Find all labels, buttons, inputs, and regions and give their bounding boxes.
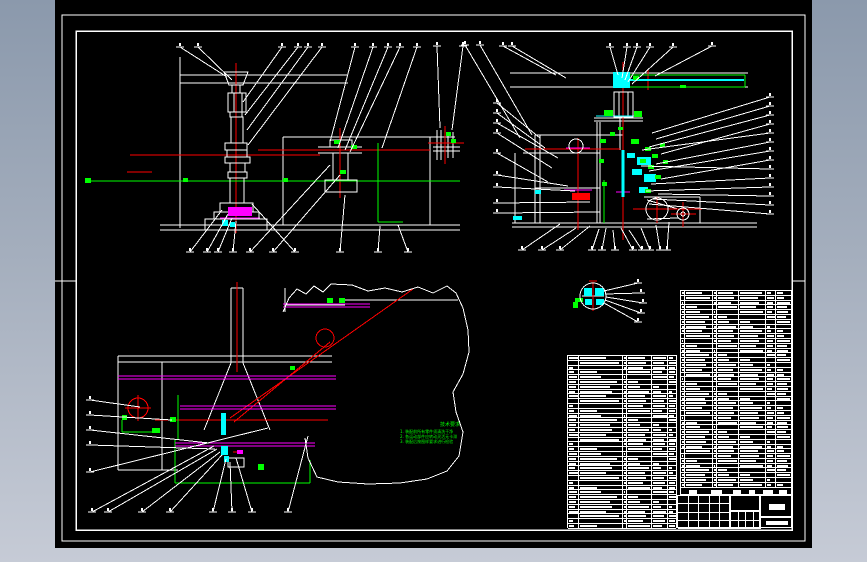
bom-cell bbox=[739, 464, 765, 468]
bom-cell-text bbox=[682, 321, 685, 323]
bom-cell bbox=[668, 452, 676, 456]
bom-cell bbox=[776, 305, 791, 309]
bom-cell bbox=[668, 366, 676, 370]
bom-cell-text bbox=[777, 330, 783, 332]
bom-cell-text bbox=[777, 446, 783, 448]
bom-cell bbox=[739, 301, 765, 305]
bom-cell bbox=[568, 385, 579, 389]
bom-cell-text bbox=[653, 511, 666, 513]
bom-cell bbox=[668, 462, 676, 466]
bom-cell bbox=[627, 428, 652, 432]
bom-cell-text bbox=[686, 306, 697, 308]
bom-cell-text bbox=[682, 436, 685, 438]
bom-cell bbox=[776, 358, 791, 362]
bom-cell-text bbox=[628, 424, 640, 426]
balloon-number bbox=[649, 246, 651, 249]
bom-cell-text bbox=[628, 391, 648, 393]
bom-cell-text bbox=[669, 448, 675, 450]
bom-cell-text bbox=[740, 446, 762, 448]
bom-cell-text bbox=[569, 506, 575, 508]
bom-cell bbox=[776, 406, 791, 410]
bom-cell bbox=[568, 418, 579, 422]
bom-cell bbox=[652, 390, 668, 394]
title-block-cell bbox=[730, 495, 760, 511]
bom-cell bbox=[652, 490, 668, 494]
bom-cell-text bbox=[718, 450, 734, 452]
balloon-number bbox=[496, 119, 498, 122]
bom-cell bbox=[766, 449, 776, 453]
bom-cell-text bbox=[740, 306, 755, 308]
title-block-grid-cell bbox=[678, 496, 689, 504]
bom-cell bbox=[685, 310, 713, 314]
bom-cell bbox=[776, 382, 791, 386]
bom-cell bbox=[739, 416, 765, 420]
drawing-fill bbox=[644, 174, 656, 182]
drawing-fill bbox=[221, 446, 228, 455]
bom-cell bbox=[579, 418, 623, 422]
bom-cell-text bbox=[714, 311, 715, 313]
bom-cell-text bbox=[669, 506, 672, 508]
bom-cell bbox=[627, 370, 652, 374]
bom-cell bbox=[627, 481, 652, 485]
bom-cell-text bbox=[767, 292, 771, 294]
bom-cell-text bbox=[686, 335, 710, 337]
bom-cell-text bbox=[569, 386, 576, 388]
bom-cell-text bbox=[669, 458, 676, 460]
bom-cell bbox=[668, 447, 676, 451]
bom-cell-text bbox=[624, 467, 626, 469]
bom-cell bbox=[739, 449, 765, 453]
bom-cell-text bbox=[580, 395, 606, 397]
bom-cell-text bbox=[653, 467, 661, 469]
bom-cell-text bbox=[653, 391, 661, 393]
bom-cell-text bbox=[624, 515, 626, 517]
balloon-number bbox=[251, 508, 253, 511]
bom-cell bbox=[568, 457, 579, 461]
bom-cell-text bbox=[767, 450, 775, 452]
bom-cell bbox=[668, 481, 676, 485]
bom-cell bbox=[627, 375, 652, 379]
bom-cell bbox=[739, 397, 765, 401]
title-block-grid-cell bbox=[710, 521, 721, 529]
bom-cell bbox=[568, 361, 579, 365]
balloon-number bbox=[387, 43, 389, 46]
bom-cell-text bbox=[653, 367, 664, 369]
bom-cell-text bbox=[718, 326, 736, 328]
bom-cell bbox=[739, 373, 765, 377]
bom-cell bbox=[579, 447, 623, 451]
bom-cell-text bbox=[653, 405, 664, 407]
bom-cell-text bbox=[686, 431, 709, 433]
bom-cell bbox=[568, 414, 579, 418]
title-block-grid-cell bbox=[699, 496, 710, 504]
bom-cell bbox=[627, 452, 652, 456]
bom-cell-text bbox=[580, 400, 619, 402]
bom-cell bbox=[776, 310, 791, 314]
balloon-number bbox=[496, 209, 498, 212]
bom-cell-text bbox=[740, 374, 758, 376]
bom-cell bbox=[717, 459, 739, 463]
bom-cell-text bbox=[569, 405, 573, 407]
bom-cell bbox=[685, 349, 713, 353]
bom-cell bbox=[739, 454, 765, 458]
bom-cell-text bbox=[653, 362, 664, 364]
bom-cell-text bbox=[653, 439, 664, 441]
balloon-number bbox=[189, 248, 191, 251]
bom-cell-text bbox=[653, 520, 664, 522]
bom-cell bbox=[579, 519, 623, 523]
bom-cell-text bbox=[682, 474, 685, 476]
notes-heading: 技术要求 bbox=[400, 423, 500, 428]
bom-cell bbox=[668, 361, 676, 365]
balloon-number bbox=[307, 43, 309, 46]
bom-cell-text bbox=[714, 469, 716, 471]
bom-cell bbox=[627, 409, 652, 413]
bom-cell bbox=[717, 406, 739, 410]
balloon-number bbox=[89, 396, 91, 399]
bom-cell bbox=[652, 428, 668, 432]
balloon-number bbox=[636, 43, 638, 46]
bom-cell-text bbox=[718, 402, 736, 404]
bom-cell bbox=[766, 329, 776, 333]
bom-cell bbox=[568, 399, 579, 403]
bom-cell bbox=[739, 430, 765, 434]
balloon-number bbox=[769, 93, 771, 96]
bom-cell-text bbox=[628, 463, 640, 465]
bom-cell bbox=[776, 325, 791, 329]
bom-cell bbox=[685, 334, 713, 338]
bom-cell-text bbox=[624, 357, 626, 359]
bom-cell bbox=[717, 416, 739, 420]
bom-cell-text bbox=[653, 482, 664, 484]
bom-cell bbox=[766, 296, 776, 300]
bom-cell-text bbox=[686, 326, 706, 328]
bom-cell bbox=[579, 471, 623, 475]
bom-header-text bbox=[749, 490, 755, 494]
bom-cell bbox=[776, 425, 791, 429]
bom-cell bbox=[776, 301, 791, 305]
bom-cell bbox=[652, 399, 668, 403]
bom-cell-text bbox=[767, 326, 771, 328]
bom-cell-text bbox=[767, 412, 775, 414]
balloon-number bbox=[769, 192, 771, 195]
bom-cell bbox=[685, 320, 713, 324]
drawing-fill bbox=[631, 139, 639, 144]
bom-cell bbox=[766, 440, 776, 444]
bom-cell bbox=[579, 476, 623, 480]
bom-cell-text bbox=[669, 515, 675, 517]
bom-cell-text bbox=[628, 458, 638, 460]
bom-cell bbox=[568, 519, 579, 523]
drawing-fill bbox=[585, 299, 592, 305]
bom-cell bbox=[739, 368, 765, 372]
bom-cell bbox=[766, 406, 776, 410]
bom-cell-text bbox=[653, 501, 659, 503]
bom-cell-text bbox=[777, 292, 783, 294]
bom-cell-text bbox=[718, 412, 734, 414]
bom-cell-text bbox=[686, 450, 710, 452]
bom-cell bbox=[766, 334, 776, 338]
bom-cell bbox=[685, 459, 713, 463]
bom-cell bbox=[717, 397, 739, 401]
bom-cell-text bbox=[718, 364, 736, 366]
bom-cell bbox=[627, 466, 652, 470]
drawing-fill bbox=[224, 456, 229, 462]
bom-cell-text bbox=[718, 369, 733, 371]
bom-cell bbox=[717, 430, 739, 434]
balloon-number bbox=[502, 42, 504, 45]
bom-cell bbox=[717, 315, 739, 319]
drawing-fill bbox=[339, 298, 345, 303]
bom-cell-text bbox=[653, 424, 659, 426]
bom-cell bbox=[568, 442, 579, 446]
bom-cell-text bbox=[624, 429, 626, 431]
bom-cell-text bbox=[580, 487, 597, 489]
bom-cell-text bbox=[580, 477, 619, 479]
bom-cell-text bbox=[624, 391, 626, 393]
bom-cell-text bbox=[686, 354, 709, 356]
bom-cell bbox=[717, 363, 739, 367]
bom-cell bbox=[766, 363, 776, 367]
bom-cell bbox=[766, 325, 776, 329]
bom-cell bbox=[739, 382, 765, 386]
bom-cell-text bbox=[628, 400, 646, 402]
balloon-number bbox=[649, 43, 651, 46]
bom-cell-text bbox=[740, 402, 753, 404]
bom-cell-text bbox=[628, 357, 645, 359]
bom-cell bbox=[568, 366, 579, 370]
bom-cell-text bbox=[714, 354, 716, 356]
bom-cell bbox=[652, 394, 668, 398]
bom-cell-text bbox=[767, 426, 772, 428]
bom-cell bbox=[579, 394, 623, 398]
bom-cell-text bbox=[569, 371, 574, 373]
bom-cell bbox=[766, 344, 776, 348]
bom-cell bbox=[685, 315, 713, 319]
bom-cell bbox=[652, 500, 668, 504]
drawing-fill bbox=[634, 111, 642, 117]
bom-cell bbox=[579, 433, 623, 437]
title-block-grid-cell bbox=[710, 496, 721, 504]
bom-cell bbox=[685, 377, 713, 381]
bom-cell-text bbox=[569, 367, 573, 369]
bom-cell-text bbox=[628, 381, 638, 383]
balloon-number bbox=[339, 248, 341, 251]
title-block-cell bbox=[760, 517, 792, 528]
drawing-fill bbox=[600, 139, 606, 143]
bom-cell-text bbox=[714, 369, 717, 371]
bom-cell bbox=[668, 442, 676, 446]
title-block-grid-cell bbox=[699, 504, 710, 512]
bom-header-text bbox=[763, 490, 773, 494]
bom-cell-text bbox=[777, 460, 788, 462]
drawing-fill bbox=[535, 190, 541, 194]
title-block-grid-cell bbox=[689, 496, 700, 504]
bom-cell-text bbox=[718, 374, 734, 376]
bom-cell-text bbox=[718, 407, 733, 409]
bom-cell-text bbox=[682, 422, 684, 424]
balloon-number bbox=[640, 289, 642, 292]
bom-cell-text bbox=[767, 431, 775, 433]
bom-cell-text bbox=[628, 429, 648, 431]
bom-cell-text bbox=[777, 302, 790, 304]
bom-cell bbox=[668, 390, 676, 394]
bom-cell-text bbox=[714, 450, 716, 452]
bom-cell bbox=[766, 368, 776, 372]
bom-cell bbox=[652, 361, 668, 365]
bom-cell bbox=[717, 445, 739, 449]
bom-cell bbox=[766, 301, 776, 305]
bom-cell bbox=[717, 478, 739, 482]
bom-cell bbox=[579, 375, 623, 379]
bom-cell-text bbox=[580, 419, 617, 421]
bom-cell bbox=[739, 421, 765, 425]
bom-cell bbox=[579, 457, 623, 461]
balloon-number bbox=[496, 99, 498, 102]
bom-cell-text bbox=[686, 412, 710, 414]
bom-cell-text bbox=[682, 340, 683, 342]
bom-cell bbox=[652, 366, 668, 370]
title-block-cell bbox=[760, 495, 792, 517]
bom-cell bbox=[776, 401, 791, 405]
bom-cell bbox=[717, 329, 739, 333]
bom-cell-text bbox=[580, 448, 597, 450]
bom-cell-text bbox=[740, 364, 753, 366]
bom-cell bbox=[579, 366, 623, 370]
balloon-number bbox=[496, 183, 498, 186]
bom-cell bbox=[739, 435, 765, 439]
bom-cell bbox=[579, 390, 623, 394]
balloon-number bbox=[496, 199, 498, 202]
bom-cell bbox=[717, 382, 739, 386]
bom-cell-text bbox=[767, 383, 774, 385]
bom-cell bbox=[568, 514, 579, 518]
bom-cell-text bbox=[714, 292, 717, 294]
bom-cell-text bbox=[686, 374, 710, 376]
bom-cell bbox=[668, 500, 676, 504]
bom-cell bbox=[627, 385, 652, 389]
bom-cell bbox=[685, 387, 713, 391]
bom-cell-text bbox=[624, 362, 626, 364]
bom-cell-text bbox=[777, 407, 783, 409]
bom-cell-text bbox=[682, 398, 685, 400]
bom-cell bbox=[568, 428, 579, 432]
drawing-fill bbox=[632, 169, 642, 175]
bom-cell bbox=[568, 471, 579, 475]
bom-cell-text bbox=[740, 326, 753, 328]
bom-cell bbox=[652, 423, 668, 427]
bom-cell bbox=[717, 349, 739, 353]
bom-header-text bbox=[733, 490, 741, 494]
bom-row bbox=[568, 524, 676, 529]
bom-cell bbox=[652, 375, 668, 379]
bom-cell bbox=[739, 320, 765, 324]
bom-cell-text bbox=[777, 354, 786, 356]
drawing-fill bbox=[183, 178, 188, 182]
bom-cell bbox=[685, 353, 713, 357]
bom-cell-text bbox=[669, 482, 674, 484]
bom-cell-text bbox=[777, 388, 789, 390]
balloon-number bbox=[769, 102, 771, 105]
bom-cell-text bbox=[740, 422, 755, 424]
bom-cell-text bbox=[740, 479, 753, 481]
drawing-fill bbox=[575, 298, 583, 302]
balloon-number bbox=[197, 43, 199, 46]
bom-cell bbox=[739, 411, 765, 415]
bom-cell-text bbox=[569, 463, 576, 465]
bom-cell bbox=[627, 433, 652, 437]
bom-cell-text bbox=[718, 292, 733, 294]
bom-cell bbox=[668, 409, 676, 413]
bom-cell-text bbox=[569, 429, 575, 431]
bom-cell bbox=[652, 471, 668, 475]
bom-cell-text bbox=[718, 441, 736, 443]
bom-cell bbox=[652, 452, 668, 456]
bom-cell-text bbox=[580, 463, 610, 465]
bom-cell-text bbox=[580, 525, 597, 527]
bom-cell-text bbox=[669, 491, 674, 493]
bom-cell-text bbox=[580, 491, 602, 493]
bom-cell-text bbox=[669, 362, 675, 364]
bom-cell bbox=[685, 329, 713, 333]
bom-cell-text bbox=[624, 400, 626, 402]
bom-cell bbox=[739, 315, 765, 319]
bom-cell bbox=[652, 380, 668, 384]
bom-cell-text bbox=[740, 311, 763, 313]
bom-cell-text bbox=[686, 474, 705, 476]
bom-cell-text bbox=[569, 491, 577, 493]
bom-cell bbox=[668, 394, 676, 398]
bom-cell-text bbox=[580, 453, 602, 455]
bom-cell-text bbox=[718, 436, 729, 438]
bom-cell-text bbox=[777, 359, 791, 361]
balloon-number bbox=[399, 43, 401, 46]
bom-cell bbox=[668, 476, 676, 480]
bom-cell-text bbox=[767, 330, 771, 332]
bom-cell-text bbox=[669, 520, 674, 522]
bom-cell-text bbox=[669, 367, 674, 369]
bom-cell-text bbox=[653, 376, 667, 378]
bom-cell bbox=[766, 349, 776, 353]
bom-cell bbox=[766, 353, 776, 357]
bom-cell-text bbox=[682, 455, 683, 457]
balloon-number bbox=[632, 246, 634, 249]
bom-cell bbox=[685, 363, 713, 367]
bom-cell-text bbox=[740, 441, 753, 443]
bom-cell-text bbox=[777, 383, 788, 385]
bom-table-left bbox=[567, 355, 677, 528]
bom-cell-text bbox=[569, 467, 575, 469]
balloon-number bbox=[407, 248, 409, 251]
bom-cell-text bbox=[653, 472, 666, 474]
bom-cell-text bbox=[767, 388, 772, 390]
bom-cell bbox=[568, 438, 579, 442]
bom-cell-text bbox=[740, 292, 762, 294]
bom-cell bbox=[685, 425, 713, 429]
bom-cell-text bbox=[686, 465, 699, 467]
balloon-number bbox=[141, 508, 143, 511]
bom-cell-text bbox=[767, 364, 771, 366]
bom-cell-text bbox=[653, 443, 664, 445]
bom-cell-text bbox=[580, 458, 617, 460]
bom-cell-text bbox=[580, 439, 619, 441]
bom-cell bbox=[766, 430, 776, 434]
bom-cell-text bbox=[682, 378, 683, 380]
bom-cell-text bbox=[682, 469, 684, 471]
bom-cell-text bbox=[777, 311, 789, 313]
bom-cell-text bbox=[777, 412, 785, 414]
bom-cell-text bbox=[767, 306, 774, 308]
